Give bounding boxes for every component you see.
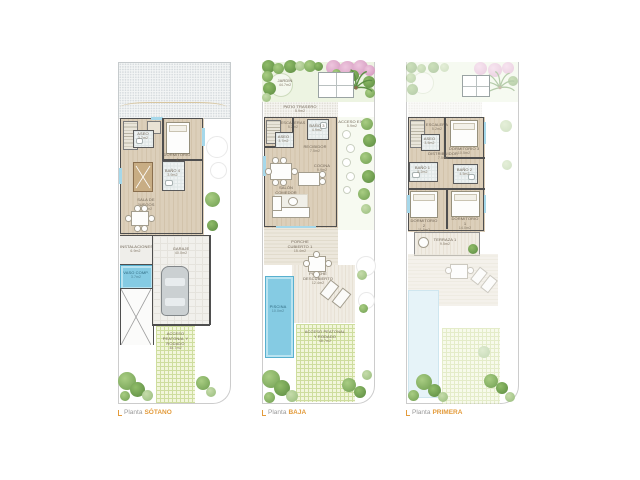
room-label-bano-4: BAÑO 43.9m2 [161, 168, 184, 177]
ramp-icon [121, 289, 151, 345]
room-area: 14.0m2 [450, 226, 480, 230]
outdoor-table-icon [450, 264, 468, 279]
room-area: 7.5m2 [302, 149, 328, 153]
plot-boundary [118, 117, 119, 404]
bush-icon [262, 93, 271, 102]
patio-faded [408, 102, 482, 117]
plot-boundary [262, 403, 336, 404]
room-label-dormitorio-2: DORMITORIO 211.5m2 [410, 218, 438, 232]
dining-table-icon [270, 163, 292, 180]
room-label-terraza-1: TERRAZA 19.5m2 [428, 237, 462, 246]
room-area: 10.0m2 [266, 309, 290, 313]
room-label-vaso-comp: VASO COMP.3.7m2 [121, 270, 151, 279]
billiard-cues-icon [134, 163, 152, 191]
room-area: 5.2m2 [410, 170, 435, 174]
room-area: 6.9m2 [120, 249, 151, 253]
room-label-bano-2: BAÑO 24.5m2 [453, 167, 476, 176]
room-label-acceso: ACCESO PEATONAL Y RODADO48.7m2 [157, 331, 194, 350]
room-area: 48.7m2 [157, 346, 194, 350]
chair-icon [280, 157, 287, 164]
bush-icon [142, 390, 153, 401]
bush-icon [500, 120, 512, 132]
room-area: 5.9m2 [280, 109, 320, 113]
kitchen-island-icon [298, 172, 320, 186]
bush-icon [408, 390, 419, 401]
room-label-piscina: PISCINA10.0m2 [266, 304, 290, 313]
garage-ramp [120, 289, 154, 345]
bush-icon [361, 118, 373, 130]
bush-icon [505, 392, 515, 402]
billiard-table-icon [133, 162, 153, 192]
room-label-porche-cubierto: PORCHE CUBIERTO 115.4m2 [282, 239, 318, 253]
caption-tick-icon [406, 410, 410, 416]
caption-prefix: Planta [124, 409, 142, 416]
stepping-stone-icon [343, 186, 351, 194]
chair-icon [148, 215, 155, 222]
plot-boundary [118, 403, 192, 404]
window-icon [202, 128, 205, 146]
room-area: 3.7m2 [133, 136, 153, 140]
bush-icon [359, 304, 368, 313]
room-label-aseo: ASEO3.7m2 [275, 134, 292, 143]
sink-icon [165, 180, 173, 186]
stepping-stone-icon [342, 130, 351, 139]
plan-sotano: ASEO3.7m2 DORMITORIO 49.5m2 BAÑO 43.9m2 … [118, 60, 231, 405]
pergola-beam [319, 85, 353, 86]
tree-outline-icon [210, 162, 227, 179]
driveway-lawn-faded [442, 328, 500, 404]
bush-icon [120, 391, 130, 401]
bush-icon [417, 64, 426, 73]
room-area: 40.0m2 [164, 251, 198, 255]
room-label-bano-3: BAÑO 34.9m2 [307, 123, 327, 132]
room-label-jardin: JARDÍN44.7m2 [272, 78, 298, 87]
chair-icon [125, 215, 132, 222]
room-label-cocina: COCINA9.9m2 [310, 163, 334, 172]
plot-boundary [518, 62, 519, 363]
bush-icon [502, 160, 512, 170]
bush-icon [478, 346, 490, 358]
chair-icon [313, 271, 320, 278]
bush-icon [358, 188, 370, 200]
room-label-recibidor: RECIBIDOR7.5m2 [302, 144, 328, 153]
chair-icon [265, 168, 272, 175]
terrain-line [120, 102, 227, 113]
caption-name: SÓTANO [144, 409, 171, 416]
partition-wall [446, 188, 448, 229]
chair-icon [325, 260, 332, 267]
caption-baja: Planta BAJA [262, 409, 306, 416]
stepping-stone-icon [342, 158, 351, 167]
room-label-escalera: ESCALERA5.2m2 [424, 122, 450, 131]
plot-boundary [230, 117, 231, 363]
room-area: 3.7m2 [121, 275, 151, 279]
room-name: ACCESO PEATONAL Y RODADO [157, 331, 194, 346]
chair-icon [134, 225, 141, 232]
room-area: 3.7m2 [275, 139, 292, 143]
caption-name: BAJA [288, 409, 306, 416]
room-label-distribuidor: DISTRIBUIDOR7.5m2 [428, 151, 458, 160]
caption-prefix: Planta [268, 409, 286, 416]
bush-icon [362, 170, 375, 183]
room-area: 4.9m2 [307, 128, 327, 132]
chair-icon [141, 205, 148, 212]
caption-name: PRIMERA [432, 409, 462, 416]
bush-icon [407, 84, 418, 95]
window-icon [119, 168, 122, 184]
bush-icon [468, 244, 478, 254]
sofa-icon [272, 196, 282, 211]
bush-icon [357, 270, 367, 280]
bush-icon [363, 134, 376, 147]
bush-icon [406, 73, 416, 83]
room-area: 4.5m2 [453, 172, 476, 176]
bush-icon [205, 192, 220, 207]
bush-icon [362, 370, 372, 380]
outdoor-table-icon [308, 256, 326, 272]
room-name: DORMITORIO 2 [410, 218, 438, 228]
window-icon [484, 195, 487, 213]
chair-icon [467, 267, 474, 274]
coffee-table-icon [288, 197, 298, 206]
room-label-patio-trasero: PATIO TRASERO5.9m2 [280, 104, 320, 113]
caption-tick-icon [118, 410, 122, 416]
room-area: 9.9m2 [310, 168, 334, 172]
bush-icon [406, 62, 417, 73]
pool-icon [265, 276, 294, 358]
bush-icon [428, 62, 439, 73]
chair-icon [141, 225, 148, 232]
pergola-icon [462, 75, 490, 97]
games-table-icon [131, 211, 149, 226]
window-icon [484, 122, 487, 144]
tree-outline-icon [206, 136, 228, 158]
plot-boundary [262, 62, 263, 403]
bush-icon [440, 63, 449, 72]
bed-icon [451, 191, 480, 217]
plot-boundary [374, 62, 375, 363]
caption-tick-icon [262, 410, 266, 416]
room-name: DORMITORIO 1 [450, 216, 480, 226]
bed-icon [166, 122, 190, 154]
stepping-stone-icon [346, 172, 355, 181]
bush-icon [206, 387, 216, 397]
chair-icon [445, 267, 452, 274]
room-name: ACCESO PEATONAL Y RODADO [304, 329, 346, 339]
room-area: 3.9m2 [161, 173, 184, 177]
caption-prefix: Planta [412, 409, 430, 416]
room-name: PORCHE CUBIERTO 1 [282, 239, 318, 249]
chair-icon [303, 260, 310, 267]
room-area: 7.5m2 [428, 156, 458, 160]
room-area: 44.7m2 [272, 83, 298, 87]
car-icon [161, 266, 189, 316]
bush-icon [314, 62, 323, 71]
chair-icon [313, 251, 320, 258]
room-area: 48.7m2 [304, 339, 346, 343]
room-label-aseo: ASEO3.5m2 [421, 136, 438, 145]
plan-primera: ESCALERA5.2m2 ASEO3.5m2 DORMITORIO 310.5… [406, 60, 519, 405]
room-label-dormitorio-1: DORMITORIO 114.0m2 [450, 216, 480, 230]
pergola-icon [318, 72, 354, 98]
wall [209, 235, 211, 325]
room-label-acceso: ACCESO PEATONAL Y RODADO48.7m2 [304, 329, 346, 343]
room-label-aseo: ASEO3.7m2 [133, 131, 153, 140]
room-area: 3.5m2 [421, 141, 438, 145]
plot-boundary [406, 62, 407, 403]
room-label-instalaciones: INSTALACIONES6.9m2 [120, 244, 151, 253]
bush-icon [207, 220, 218, 231]
pergola-beam [463, 86, 489, 87]
chair-icon [272, 157, 279, 164]
room-area: 5.2m2 [424, 127, 450, 131]
chair-icon [291, 168, 298, 175]
stepping-stone-icon [346, 144, 355, 153]
bush-icon [354, 386, 366, 398]
plan-baja: JARDÍN44.7m2 PATIO TRASERO5.9m2 ESCALERA… [262, 60, 375, 405]
caption-primera: Planta PRIMERA [406, 409, 462, 416]
bed-icon [410, 191, 438, 218]
room-label-garaje: GARAJE40.0m2 [164, 246, 198, 255]
floorplans-canvas: ASEO3.7m2 DORMITORIO 49.5m2 BAÑO 43.9m2 … [0, 0, 640, 480]
room-label-bano-1: BAÑO 15.2m2 [410, 165, 435, 174]
stool-icon [319, 178, 326, 185]
bush-icon [286, 390, 298, 402]
room-area: 9.5m2 [428, 242, 462, 246]
chair-icon [134, 205, 141, 212]
bush-icon [273, 63, 284, 74]
bush-icon [438, 392, 448, 402]
bush-icon [361, 204, 371, 214]
caption-sotano: Planta SÓTANO [118, 409, 172, 416]
bed-icon [450, 120, 478, 147]
bush-icon [264, 392, 275, 403]
bush-icon [360, 152, 372, 164]
